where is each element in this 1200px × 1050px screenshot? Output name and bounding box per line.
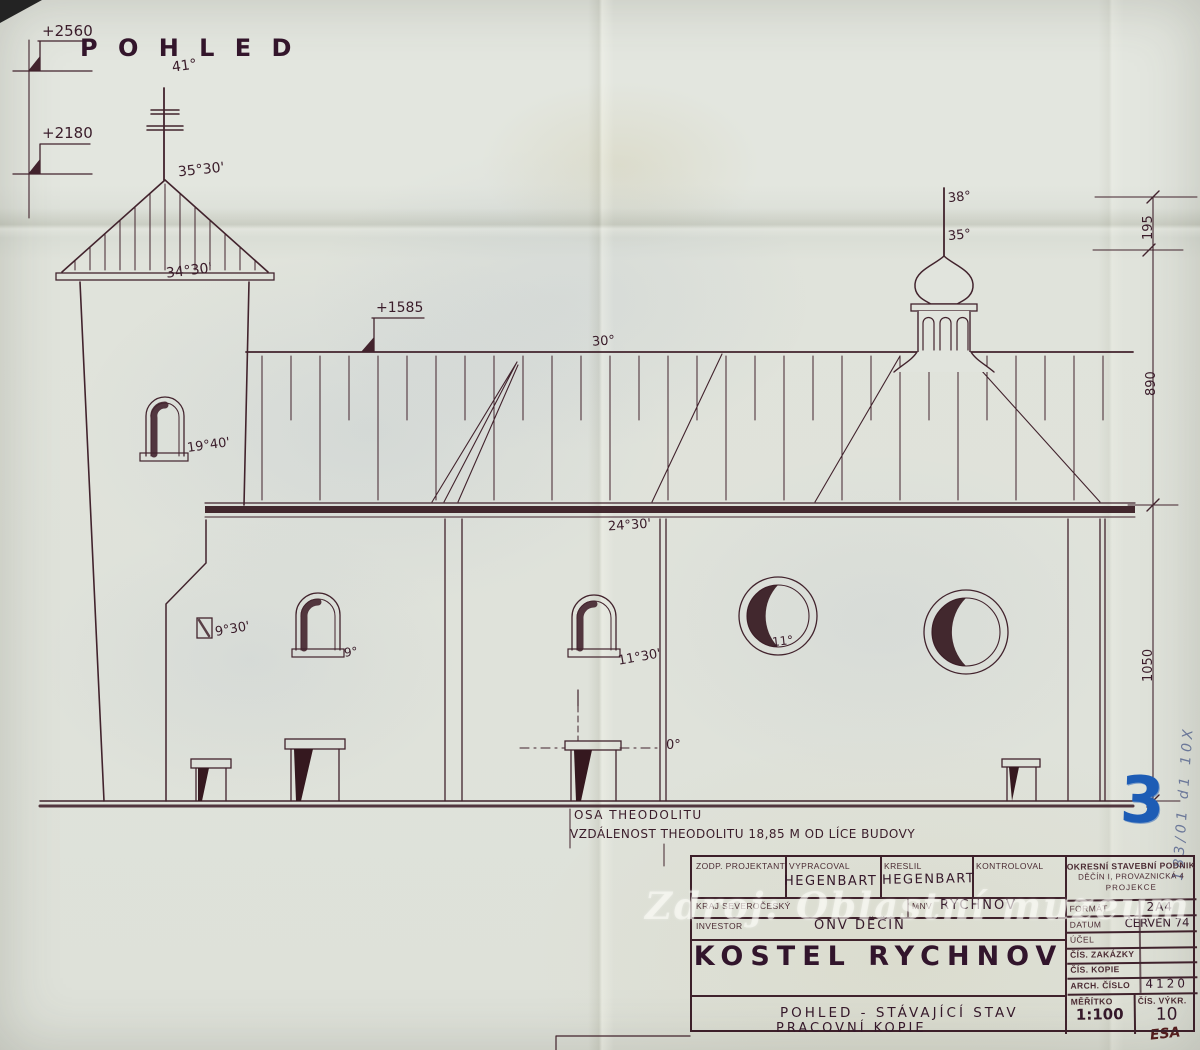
ground-line [40,801,1133,806]
dimension-label-195: 195 [1141,215,1156,240]
tower-cross-bars [147,110,183,130]
project-title: KOSTEL RYCHNOV [692,941,1065,972]
dimension-label-1050: 1050 [1141,649,1156,682]
stamp-company-line3: PROJEKCE [1066,882,1196,893]
dimension-chain [1093,191,1197,807]
stamp-cis-vykr-value: 10 [1156,1004,1178,1024]
stamp-arch-cislo-label: ARCH. ČÍSLO [1070,980,1130,991]
field-vypracoval: VYPRACOVAL [789,861,850,871]
nave-roof [205,350,1135,517]
drawing-subtitle-line2: PRACOVNÍ KOPIE [776,1021,927,1036]
investor-value: ONV DĚČÍN [814,918,906,933]
field-kontroloval: KONTROLOVAL [976,861,1044,871]
stamp-ucel-label: ÚČEL [1070,934,1094,944]
field-mnv: MNV [912,901,932,911]
scanned-blueprint-page: P O H L E D +2560 +2180 +1585 41° 35°30'… [0,0,1200,1050]
stamp-company-line2: DĚČÍN I, PROVAZNICKÁ 4 [1066,871,1196,882]
cupola [894,188,994,372]
sheet-frame-line [556,1036,690,1050]
photo-corner [0,0,42,23]
stamp-kopie-label: ČÍS. KOPIE [1070,964,1119,975]
facade-doors [191,739,1040,801]
stamp-datum-value: ČERVEN 74 [1125,915,1190,930]
roof-hatching [262,356,1103,500]
stamp-zakazky-label: ČÍS. ZAKÁZKY [1070,949,1134,960]
elevation-label-1585: +1585 [376,300,423,316]
tower-body [80,282,249,801]
stamp-arch-cislo-value: 4120 [1145,976,1188,991]
angle-label-0: 0° [666,738,681,753]
page-number-stamp: 3 [1119,763,1166,839]
roof-hip-lines [432,350,1100,502]
stamp-company-line1: OKRESNÍ STAVEBNÍ PODNIK [1066,860,1196,872]
company-stamp: OKRESNÍ STAVEBNÍ PODNIK DĚČÍN I, PROVAZN… [1066,856,1198,1035]
field-kraj: KRAJ SEVEROČESKÝ [696,901,791,911]
field-investor: INVESTOR [696,921,743,931]
ridge-elevation-mark [361,318,424,352]
eave-cornice-band [205,506,1135,513]
angle-label-41: 41° [171,56,198,75]
onion-dome [915,256,973,304]
dimension-label-890: 890 [1144,371,1159,396]
kreslil-value: HEGENBART [882,871,976,888]
facade-windows [197,577,1008,706]
angle-label-11: 11° [771,633,794,649]
angle-label-38: 38° [947,189,971,206]
angle-label-30: 30° [592,333,616,350]
angle-label-9: 9° [343,644,358,659]
drawing-subtitle-line1: POHLED - STÁVAJÍCÍ STAV [780,1005,1019,1021]
note-theodolite-distance: VZDÁLENOST THEODOLITU 18,85 M OD LÍCE BU… [570,827,915,841]
title-block: ZODP. PROJEKTANT VYPRACOVAL KRESLIL KONT… [690,855,1195,1032]
field-kreslil: KRESLIL [884,861,922,871]
theodolite-axis [520,706,664,866]
stamp-format-value: 2A4 [1146,899,1173,913]
elevation-label-2180: +2180 [42,124,93,142]
angle-label-35: 35° [947,227,971,244]
vypracoval-value: HEGENBART [784,874,877,889]
mnv-value: RYCHNOV [940,898,1017,913]
field-zodp-projektant: ZODP. PROJEKTANT [696,861,785,871]
angle-label-24-30: 24°30' [608,517,652,535]
stamp-datum-label: DATUM [1070,919,1102,929]
elevation-label-2560: +2560 [42,22,93,40]
tower-roof [56,88,274,280]
stamp-format-label: FORMÁT [1069,903,1107,913]
stamp-meritko-value: 1:100 [1076,1005,1124,1024]
note-theodolite-axis: OSA THEODOLITU [574,808,703,822]
